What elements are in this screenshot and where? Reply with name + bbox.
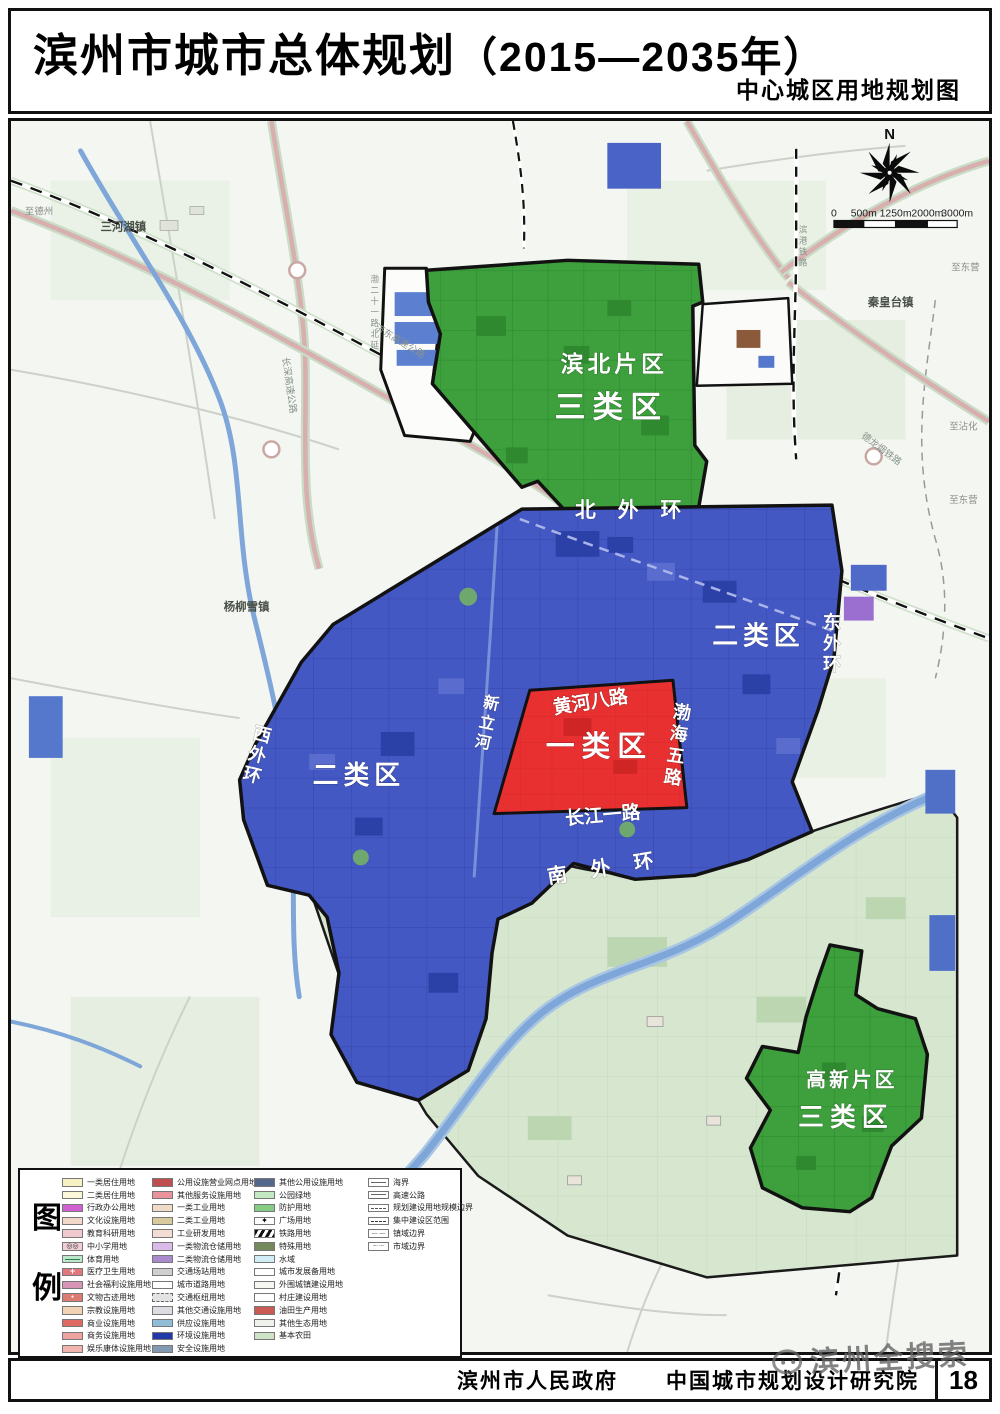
legend-item: 中小学用地	[62, 1240, 151, 1253]
legend-item-label: 二类物流仓储用地	[177, 1254, 241, 1265]
scale-tick-3: 2000m	[911, 209, 943, 220]
legend-item-label: 水域	[279, 1254, 295, 1265]
watermark-logo-icon	[771, 1348, 802, 1375]
legend-swatch	[152, 1178, 173, 1187]
legend-item-label: 二类工业用地	[177, 1215, 225, 1226]
legend-item-label: 其他交通设施用地	[177, 1305, 241, 1316]
svg-text:港: 港	[799, 235, 808, 245]
legend-item-label: 其他服务设施用地	[177, 1190, 241, 1201]
legend-item-label: 医疗卫生用地	[87, 1266, 135, 1277]
legend-item: 防护用地	[254, 1202, 343, 1215]
legend-item: 工业研发用地	[152, 1227, 257, 1240]
legend-item-label: 广场用地	[279, 1215, 311, 1226]
label-bingang-railway: 滨 港 铁 路	[799, 224, 808, 267]
legend-item: 公用设施营业网点用地	[152, 1176, 257, 1189]
legend-swatch	[368, 1242, 389, 1251]
legend-item-label: 集中建设区范围	[393, 1215, 449, 1226]
legend-item-label: 防护用地	[279, 1202, 311, 1213]
legend-item: 其他公用设施用地	[254, 1176, 343, 1189]
legend-swatch	[254, 1332, 275, 1341]
scale-bar-segments	[834, 221, 957, 228]
legend-swatch	[62, 1191, 83, 1200]
legend-swatch	[152, 1204, 173, 1213]
label-binbei-district: 滨北片区	[561, 351, 668, 377]
northeast-enclave	[697, 298, 792, 386]
legend-column-1: 一类居住用地 二类居住用地 行政办公用地 文化设施用地 教育科研用地 中小学用地…	[62, 1176, 151, 1355]
svg-text:十: 十	[371, 296, 380, 306]
legend-item: 海界	[368, 1176, 473, 1189]
legend-swatch	[62, 1345, 83, 1354]
legend-item: 文化设施用地	[62, 1214, 151, 1227]
legend-item: 二类物流仓储用地	[152, 1253, 257, 1266]
label-dir-dongying-b: 至东营	[949, 494, 977, 506]
scale-tick-4: 3000m	[941, 209, 973, 220]
legend-item: 广场用地	[254, 1214, 343, 1227]
legend-item: 市域边界	[368, 1240, 473, 1253]
legend-swatch	[368, 1217, 389, 1226]
label-dir-zhanhua: 至沾化	[949, 420, 978, 432]
legend-item: 一类居住用地	[62, 1176, 151, 1189]
svg-text:二: 二	[371, 285, 379, 295]
legend-item: 水域	[254, 1253, 343, 1266]
legend-item: 其他服务设施用地	[152, 1189, 257, 1202]
legend-item: 外围城镇建设用地	[254, 1278, 343, 1291]
legend-item: 行政办公用地	[62, 1202, 151, 1215]
legend-item-label: 铁路用地	[279, 1228, 311, 1239]
legend-item: 基本农田	[254, 1330, 343, 1343]
legend-item-label: 特殊用地	[279, 1241, 311, 1252]
legend-item-label: 其他公用设施用地	[279, 1177, 343, 1188]
legend-title: 图 例	[32, 1204, 62, 1304]
legend-swatch	[152, 1242, 173, 1251]
north-blue-block	[607, 143, 661, 189]
legend-item: 集中建设区范围	[368, 1214, 473, 1227]
legend-item-label: 教育科研用地	[87, 1228, 135, 1239]
legend-item: 安全设施用地	[152, 1342, 257, 1355]
legend-item-label: 行政办公用地	[87, 1202, 135, 1213]
legend-item: 高速公路	[368, 1189, 473, 1202]
legend-item-label: 其他生态用地	[279, 1318, 327, 1329]
legend-swatch	[62, 1255, 83, 1264]
scale-tick-2: 1250m	[880, 209, 912, 220]
legend-swatch	[254, 1268, 275, 1277]
label-bo21-road: 渤 二 十 一 路 北 延	[371, 274, 380, 350]
legend-item: 社会福利设施用地	[62, 1278, 151, 1291]
svg-text:延: 延	[371, 340, 380, 350]
legend-swatch	[254, 1217, 275, 1226]
legend-swatch	[368, 1229, 389, 1238]
legend-swatch	[254, 1178, 275, 1187]
legend-item: 宗教设施用地	[62, 1304, 151, 1317]
page-title: 滨州市城市总体规划	[33, 30, 456, 81]
legend-swatch	[254, 1319, 275, 1328]
svg-text:铁: 铁	[799, 246, 808, 256]
legend-column-4: 海界 高速公路 规划建设用地规模边界 集中建设区范围 镇域边界 市域边界	[368, 1176, 473, 1253]
legend-item-label: 工业研发用地	[177, 1228, 225, 1239]
legend-item-label: 文化设施用地	[87, 1215, 135, 1226]
legend-item-label: 公用设施营业网点用地	[177, 1177, 257, 1188]
svg-text:海: 海	[669, 722, 690, 745]
label-binbei-class: 三类区	[555, 390, 668, 425]
svg-text:五: 五	[666, 745, 687, 767]
legend-title-char-1: 图	[32, 1204, 62, 1234]
legend-swatch	[152, 1281, 173, 1290]
legend-swatch	[62, 1217, 83, 1226]
legend-item: 油田生产用地	[254, 1304, 343, 1317]
legend-item: 镇域边界	[368, 1227, 473, 1240]
svg-text:路: 路	[663, 765, 684, 788]
legend-swatch	[62, 1242, 83, 1251]
compass-n-label: N	[884, 127, 895, 143]
legend-item-label: 公园绿地	[279, 1190, 311, 1201]
legend-item: 公园绿地	[254, 1189, 343, 1202]
planning-map-page: 滨州市城市总体规划（2015—2035年） 中心城区用地规划图	[0, 0, 1000, 1414]
svg-text:一: 一	[371, 307, 380, 317]
header: 滨州市城市总体规划（2015—2035年） 中心城区用地规划图	[8, 8, 992, 114]
svg-text:外: 外	[823, 632, 841, 653]
svg-text:渤: 渤	[672, 700, 693, 723]
legend-item-label: 一类居住用地	[87, 1177, 135, 1188]
legend-box: 图 例 一类居住用地 二类居住用地 行政办公用地 文化设施用地 教育科研用地	[18, 1168, 462, 1358]
legend-swatch	[62, 1281, 83, 1290]
legend-item-label: 市域边界	[393, 1241, 425, 1252]
legend-item: 体育用地	[62, 1253, 151, 1266]
legend-column-2: 公用设施营业网点用地 其他服务设施用地 一类工业用地 二类工业用地 工业研发用地…	[152, 1176, 257, 1355]
scale-tick-0: 0	[831, 209, 837, 220]
legend-swatch	[62, 1204, 83, 1213]
legend-item-label: 商务设施用地	[87, 1330, 135, 1341]
legend-item: 交通场站用地	[152, 1266, 257, 1279]
label-dir-dezhou: 至德州	[25, 206, 53, 218]
legend-swatch	[62, 1306, 83, 1315]
legend-swatch	[254, 1255, 275, 1264]
legend-swatch	[152, 1268, 173, 1277]
legend-swatch	[152, 1306, 173, 1315]
legend-item-label: 高速公路	[393, 1190, 425, 1201]
footer-government: 滨州市人民政府	[457, 1365, 618, 1395]
legend-column-3: 其他公用设施用地 公园绿地 防护用地 广场用地 铁路用地 特殊用地 水域	[254, 1176, 343, 1342]
label-gaoxin-class: 三类区	[798, 1103, 893, 1132]
svg-text:路: 路	[799, 257, 808, 267]
legend-item: 商务设施用地	[62, 1330, 151, 1343]
legend-swatch	[62, 1229, 83, 1238]
legend-swatch	[62, 1178, 83, 1187]
legend-item-label: 体育用地	[87, 1254, 119, 1265]
legend-swatch	[254, 1293, 275, 1302]
legend-item: 娱乐康体设施用地	[62, 1342, 151, 1355]
label-gaoxin-district: 高新片区	[806, 1068, 897, 1091]
legend-item: 供应设施用地	[152, 1317, 257, 1330]
legend-item-label: 娱乐康体设施用地	[87, 1343, 151, 1354]
legend-item-label: 一类工业用地	[177, 1202, 225, 1213]
legend-item-label: 油田生产用地	[279, 1305, 327, 1316]
legend-item: 商业设施用地	[62, 1317, 151, 1330]
legend-item: 环境设施用地	[152, 1330, 257, 1343]
label-town-qinhuangtai: 秦皇台镇	[867, 295, 914, 309]
legend-item-label: 一类物流仓储用地	[177, 1241, 241, 1252]
legend-item: 一类物流仓储用地	[152, 1240, 257, 1253]
legend-item: 教育科研用地	[62, 1227, 151, 1240]
legend-item-label: 中小学用地	[87, 1241, 127, 1252]
legend-swatch	[152, 1319, 173, 1328]
map-subtitle: 中心城区用地规划图	[736, 71, 961, 105]
legend-swatch	[254, 1229, 275, 1238]
watermark-text: 滨州全搜索	[809, 1331, 971, 1381]
legend-item-label: 城市发展备用地	[279, 1266, 335, 1277]
legend-item-label: 宗教设施用地	[87, 1305, 135, 1316]
label-class1: 一类区	[546, 731, 653, 763]
legend-item-label: 村庄建设用地	[279, 1292, 327, 1303]
label-ring-north: 北外环	[575, 498, 703, 522]
legend-item-label: 镇域边界	[393, 1228, 425, 1239]
legend-item-label: 交通场站用地	[177, 1266, 225, 1277]
legend-item-label: 环境设施用地	[177, 1330, 225, 1341]
legend-swatch	[254, 1306, 275, 1315]
legend-item-label: 规划建设用地规模边界	[393, 1202, 473, 1213]
svg-text:东: 东	[823, 612, 841, 633]
legend-item-label: 安全设施用地	[177, 1343, 225, 1354]
scale-tick-1: 500m	[851, 209, 877, 220]
label-town-sanhehu: 三河湖镇	[100, 219, 146, 233]
legend-item: 特殊用地	[254, 1240, 343, 1253]
legend-item-label: 文物古迹用地	[87, 1292, 135, 1303]
legend-swatch	[152, 1293, 173, 1302]
legend-item: 其他生态用地	[254, 1317, 343, 1330]
svg-text:滨: 滨	[799, 224, 808, 234]
label-class2-east: 二类区	[712, 621, 804, 650]
legend-swatch	[62, 1268, 83, 1277]
legend-item: 医疗卫生用地	[62, 1266, 151, 1279]
legend-swatch	[254, 1204, 275, 1213]
legend-swatch	[152, 1332, 173, 1341]
legend-swatch	[152, 1217, 173, 1226]
svg-text:渤: 渤	[371, 274, 379, 284]
legend-item-label: 海界	[393, 1177, 409, 1188]
legend-item: 城市发展备用地	[254, 1266, 343, 1279]
legend-swatch	[152, 1255, 173, 1264]
legend-item-label: 外围城镇建设用地	[279, 1279, 343, 1290]
legend-item: 二类居住用地	[62, 1189, 151, 1202]
legend-swatch	[368, 1191, 389, 1200]
legend-swatch	[152, 1345, 173, 1354]
legend-item-label: 供应设施用地	[177, 1318, 225, 1329]
legend-item: 二类工业用地	[152, 1214, 257, 1227]
legend-swatch	[368, 1204, 389, 1213]
scale-bar: 0 500m 1250m 2000m 3000m	[831, 209, 973, 228]
label-class2-west: 二类区	[313, 761, 405, 790]
legend-item: 铁路用地	[254, 1227, 343, 1240]
legend-item-label: 交通枢纽用地	[177, 1292, 225, 1303]
legend-item: 规划建设用地规模边界	[368, 1202, 473, 1215]
legend-swatch	[62, 1332, 83, 1341]
label-ring-east: 东 外 环	[823, 612, 841, 675]
legend-item: 一类工业用地	[152, 1202, 257, 1215]
legend-item-label: 商业设施用地	[87, 1318, 135, 1329]
legend-swatch	[254, 1191, 275, 1200]
legend-swatch	[152, 1191, 173, 1200]
legend-item: 交通枢纽用地	[152, 1291, 257, 1304]
svg-text:环: 环	[823, 654, 841, 674]
legend-item-label: 城市道路用地	[177, 1279, 225, 1290]
legend-swatch	[62, 1293, 83, 1302]
legend-swatch	[254, 1242, 275, 1251]
legend-item: 城市道路用地	[152, 1278, 257, 1291]
label-town-yangliuxue: 杨柳雪镇	[224, 600, 270, 614]
legend-item-label: 基本农田	[279, 1330, 311, 1341]
legend-item: 其他交通设施用地	[152, 1304, 257, 1317]
legend-item-label: 二类居住用地	[87, 1190, 135, 1201]
legend-title-char-2: 例	[32, 1274, 62, 1304]
legend-swatch	[368, 1178, 389, 1187]
legend-swatch	[254, 1281, 275, 1290]
label-dir-dongying-a: 至东营	[951, 261, 979, 273]
legend-item: 文物古迹用地	[62, 1291, 151, 1304]
legend-swatch	[62, 1319, 83, 1328]
legend-swatch	[152, 1229, 173, 1238]
legend-item-label: 社会福利设施用地	[87, 1279, 151, 1290]
legend-item: 村庄建设用地	[254, 1291, 343, 1304]
